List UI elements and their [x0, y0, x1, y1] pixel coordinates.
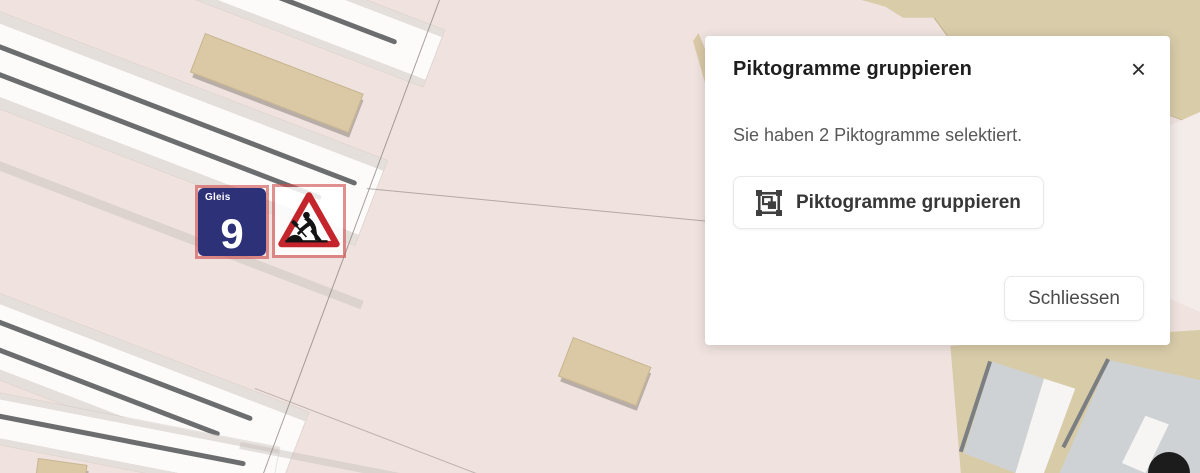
dialog-title: Piktogramme gruppieren — [733, 58, 1142, 81]
pictogram-construction-sign[interactable] — [272, 184, 346, 258]
group-icon — [756, 190, 782, 216]
building — [558, 337, 651, 406]
rail — [60, 0, 398, 45]
gleis-label: Gleis — [205, 192, 230, 203]
schliessen-button[interactable]: Schliessen — [1004, 276, 1144, 321]
gleis-number: 9 — [198, 213, 266, 255]
building — [35, 458, 88, 473]
construction-sign — [275, 187, 343, 255]
group-button-label: Piktogramme gruppieren — [796, 192, 1021, 214]
dialog-message: Sie haben 2 Piktogramme selektiert. — [733, 125, 1142, 146]
map-canvas[interactable]: Gleis 9 — [0, 0, 1200, 473]
group-pictograms-dialog: Piktogramme gruppieren × Sie haben 2 Pik… — [705, 36, 1170, 345]
gleis-sign: Gleis 9 — [198, 188, 266, 256]
pictogram-track-sign[interactable]: Gleis 9 — [195, 185, 269, 259]
roadworks-warning-icon — [277, 189, 341, 253]
group-pictograms-button[interactable]: Piktogramme gruppieren — [733, 176, 1044, 229]
close-icon[interactable]: × — [1127, 52, 1150, 86]
